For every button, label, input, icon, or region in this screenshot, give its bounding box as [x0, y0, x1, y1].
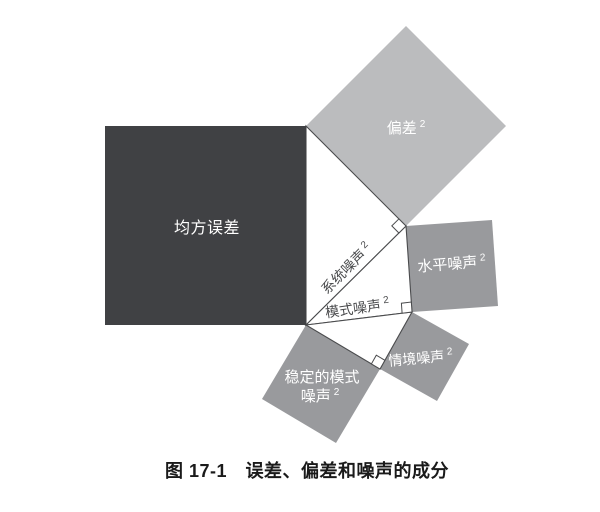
- right-angle-marker-level: [401, 302, 412, 313]
- bias-label-sup: 2: [420, 119, 426, 130]
- bias-label-text: 偏差: [387, 120, 417, 137]
- mse-label-text: 均方误差: [174, 219, 240, 237]
- figure-caption: 图 17-1 误差、偏差和噪声的成分: [165, 460, 449, 481]
- stable-pattern-noise-label-line1: 稳定的模式: [284, 369, 359, 386]
- stable-pattern-noise-line2-sup: 2: [334, 387, 340, 398]
- stable-pattern-noise-line1-text: 稳定的模式: [284, 369, 359, 386]
- mse-label: 均方误差: [174, 219, 240, 237]
- stable-pattern-noise-line2-text: 噪声: [301, 387, 331, 405]
- figure-canvas: 均方误差 偏差2 系统噪声2 模式噪声2 水平噪声2 情境噪声2 稳定的模式 噪…: [0, 0, 600, 512]
